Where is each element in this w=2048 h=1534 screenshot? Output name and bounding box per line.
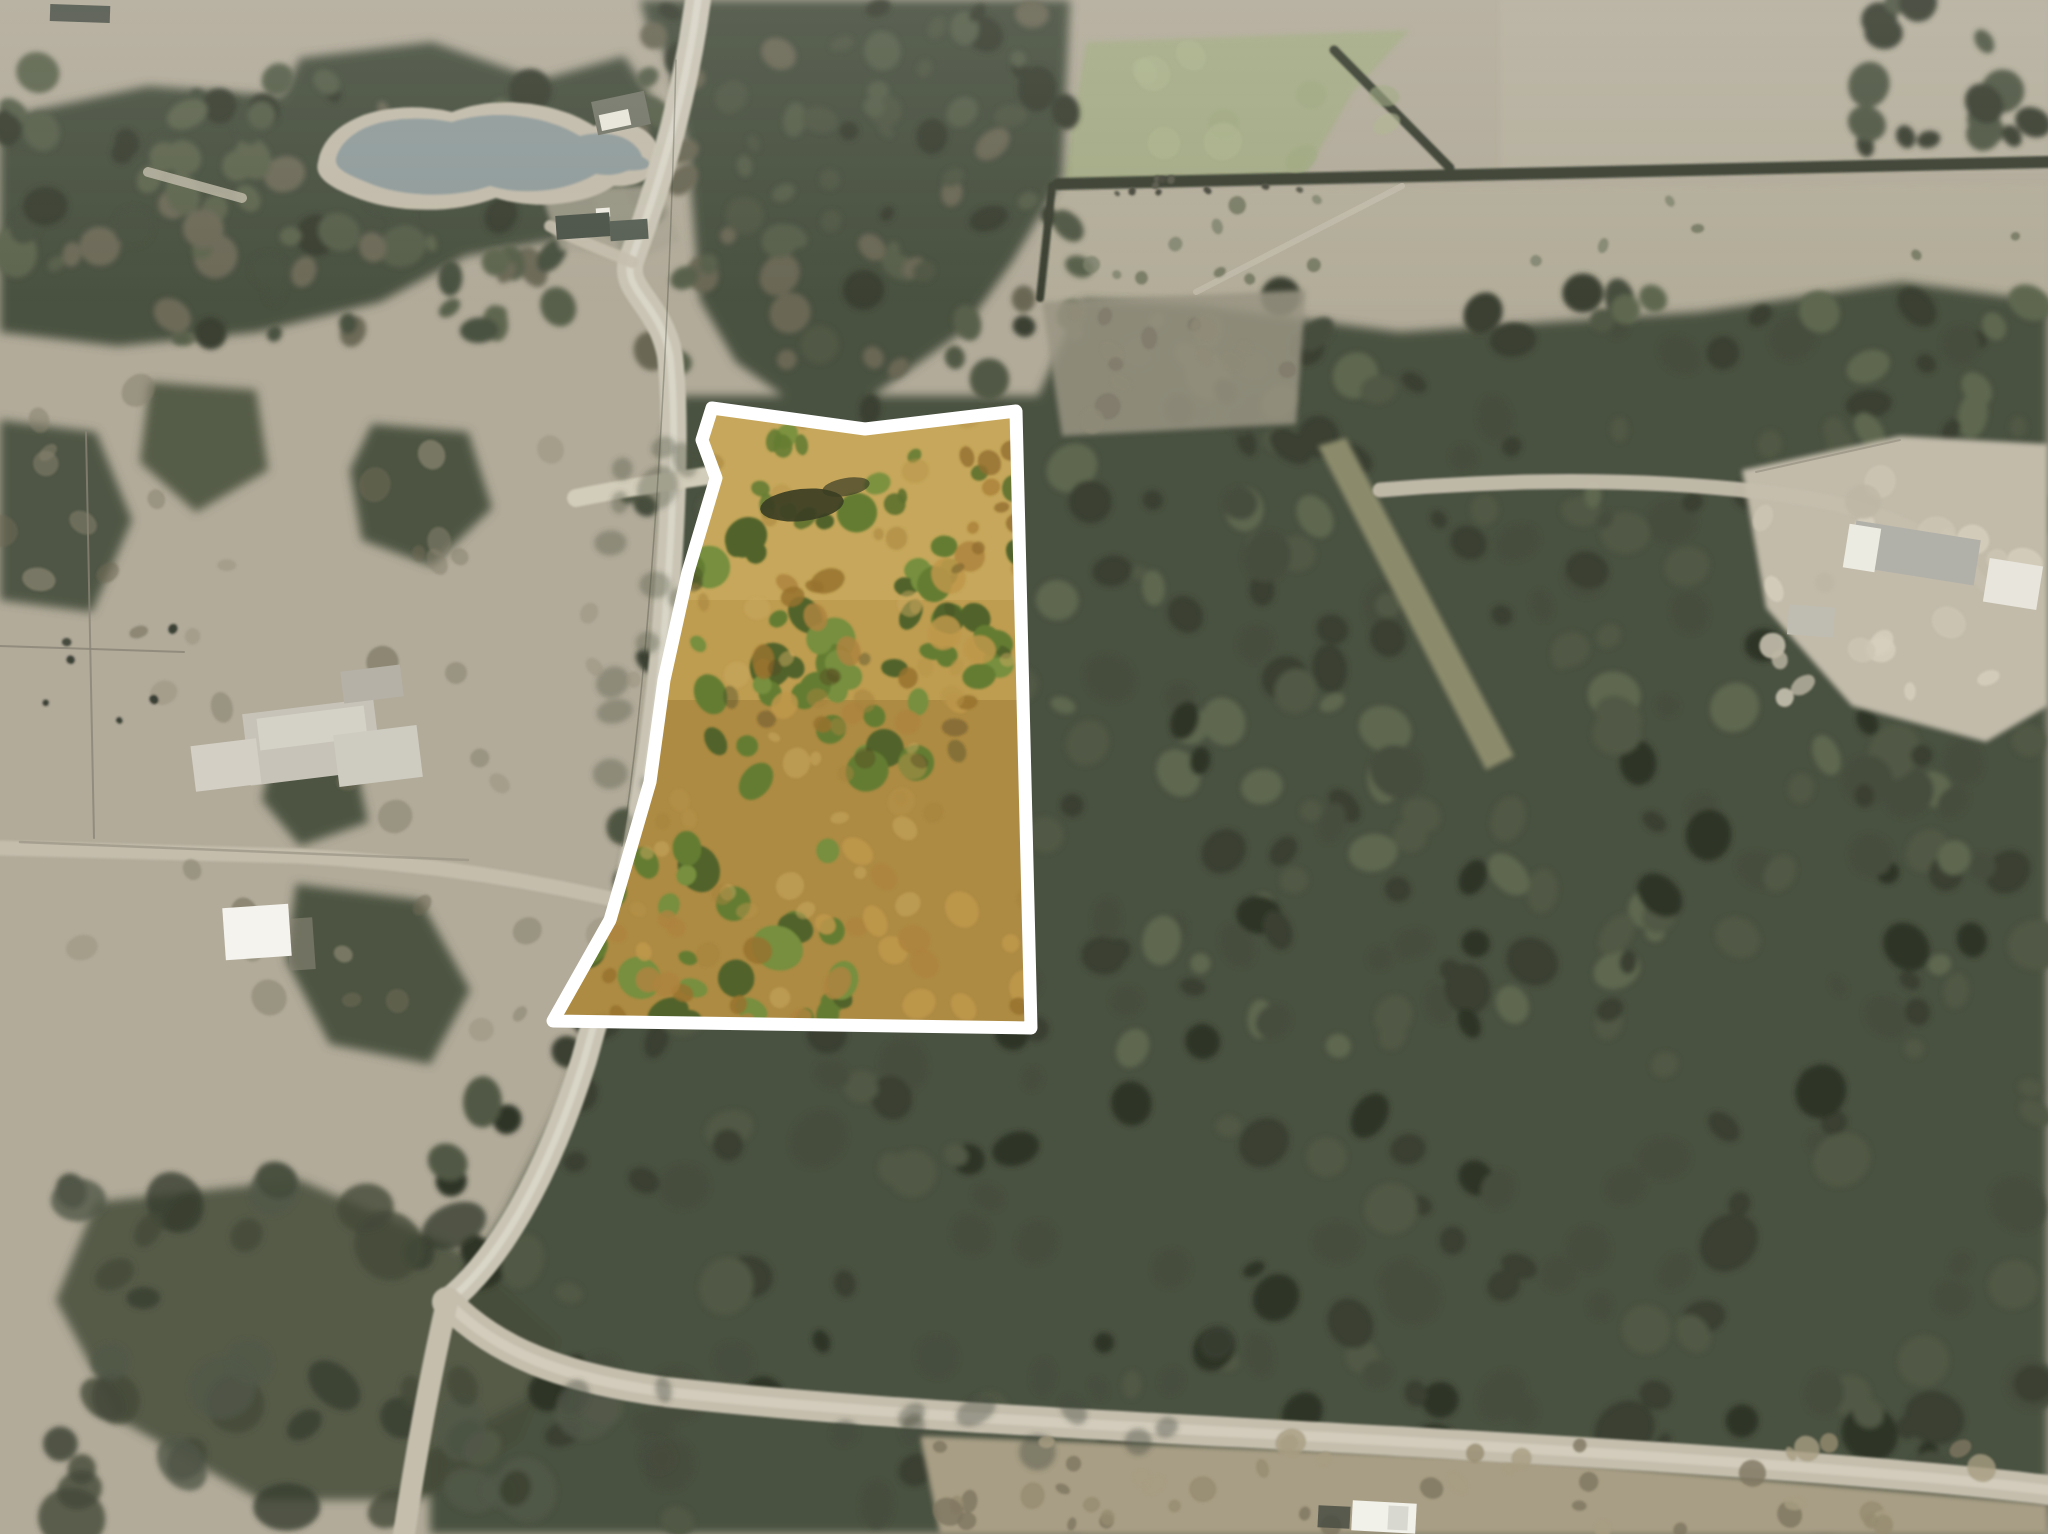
lake-cabin-b <box>609 219 648 242</box>
tree-blob <box>970 358 1010 400</box>
tree-blob <box>253 1483 320 1531</box>
tree-blob <box>1296 81 1327 109</box>
tree-blob <box>469 1018 494 1041</box>
pasture-top-right <box>1500 0 2048 170</box>
right-shed-small <box>1787 604 1835 637</box>
right-shed <box>1983 558 2043 610</box>
tree-blob <box>217 559 236 571</box>
tree-blob <box>1141 327 1157 350</box>
right-house-gable <box>1843 524 1881 572</box>
aerial-photo-canvas <box>0 0 2048 1534</box>
white-truck-cab <box>1387 1505 1408 1530</box>
trailer-dark <box>1317 1505 1350 1529</box>
farmhouse-wing <box>333 725 423 787</box>
tree-blob <box>248 102 275 130</box>
lake-cabin-a <box>555 212 611 240</box>
white-shed <box>222 904 291 960</box>
farmhouse-carport <box>190 738 261 792</box>
barn-top-left <box>50 4 111 23</box>
aerial-photo <box>0 0 2048 1534</box>
